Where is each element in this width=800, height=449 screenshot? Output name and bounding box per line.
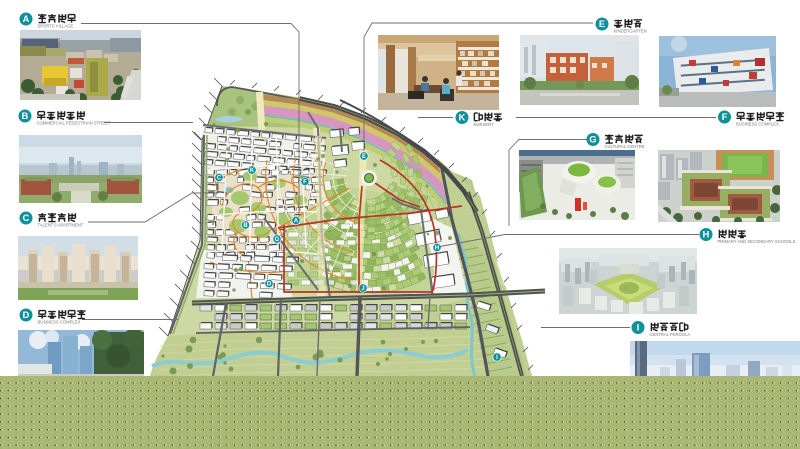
svg-text:CENTRAL PERGOLA: CENTRAL PERGOLA [650, 332, 691, 337]
svg-text:BUSINESS COMPLEX: BUSINESS COMPLEX [736, 121, 779, 126]
svg-text:G: G [275, 237, 280, 243]
svg-text:G: G [589, 135, 596, 145]
svg-text:SPORTS VILLAGE: SPORTS VILLAGE [38, 23, 74, 28]
svg-text:A: A [23, 14, 30, 24]
svg-text:I: I [637, 323, 640, 333]
svg-text:B: B [22, 111, 29, 121]
svg-text:F: F [722, 112, 728, 122]
svg-text:C: C [23, 213, 30, 223]
svg-text:PRIMARY AND SECONDARY SCHOOLS: PRIMARY AND SECONDARY SCHOOLS [718, 239, 796, 244]
svg-text:D: D [23, 310, 30, 320]
svg-text:H: H [435, 246, 439, 252]
svg-text:CULTURAL CENTRE: CULTURAL CENTRE [605, 144, 645, 149]
svg-text:KINDERGARTEN: KINDERGARTEN [614, 28, 647, 33]
svg-text:D: D [267, 282, 272, 288]
svg-text:A: A [294, 219, 299, 225]
svg-text:B: B [243, 223, 248, 229]
svg-text:F: F [303, 180, 307, 186]
svg-text:BUSINESS COMPLEX: BUSINESS COMPLEX [38, 319, 81, 324]
svg-text:K: K [459, 113, 466, 123]
svg-text:TALENT'S APARTMENT: TALENT'S APARTMENT [38, 222, 84, 227]
svg-text:COMMERCIAL PEDESTRIAN STREET: COMMERCIAL PEDESTRIAN STREET [37, 120, 111, 125]
svg-text:NURSERY: NURSERY [474, 122, 495, 127]
svg-text:K: K [250, 168, 255, 174]
svg-text:E: E [599, 19, 605, 29]
svg-text:J: J [361, 286, 364, 292]
svg-text:C: C [217, 176, 222, 182]
svg-text:H: H [703, 230, 710, 240]
svg-text:E: E [362, 154, 366, 160]
